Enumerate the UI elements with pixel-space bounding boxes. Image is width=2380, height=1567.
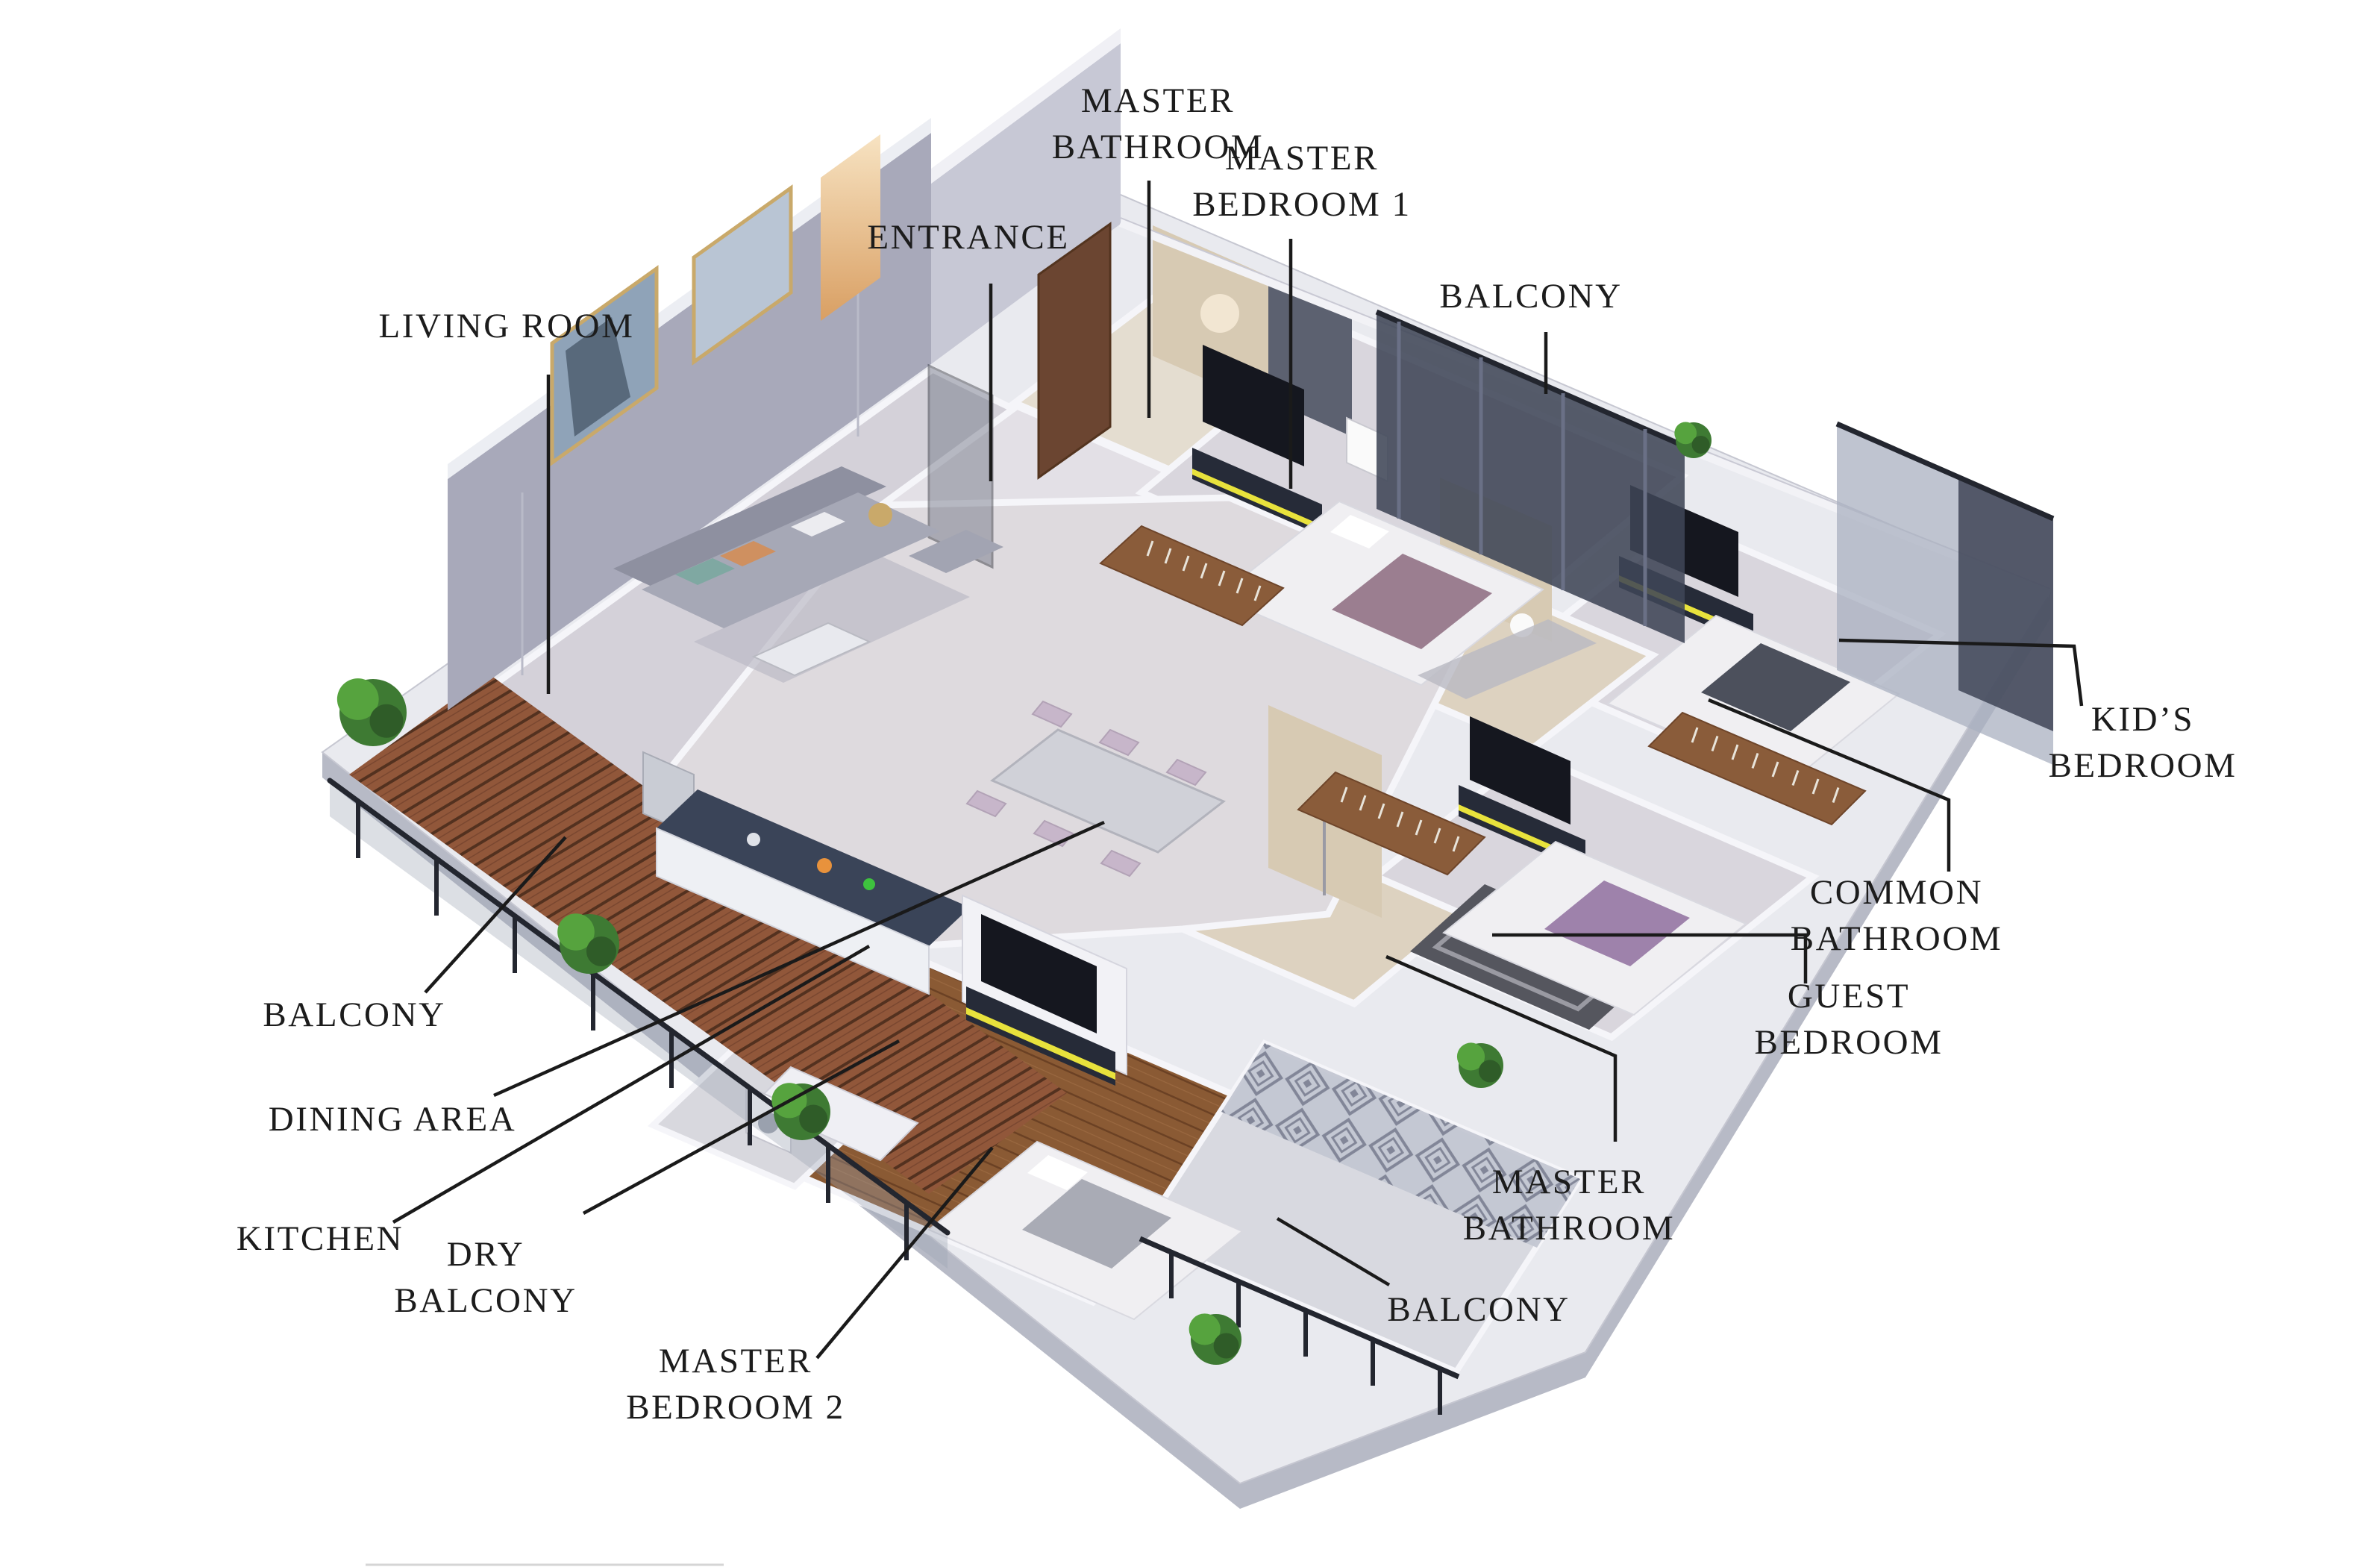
- side-table: [868, 503, 892, 527]
- kids-balcony-glass: [1958, 478, 2053, 731]
- label-guest-bedroom-line: GUEST: [1754, 973, 1943, 1019]
- label-kids-bedroom-line: KID’S: [2048, 696, 2237, 742]
- floor-plan-render: MASTERBATHROOMMASTERBEDROOM 1ENTRANCEBAL…: [0, 0, 2380, 1567]
- label-living-room: LIVING ROOM: [378, 303, 634, 349]
- label-balcony-left-line: BALCONY: [263, 992, 445, 1038]
- label-living-room-line: LIVING ROOM: [378, 303, 634, 349]
- label-guest-bedroom-line: BEDROOM: [1754, 1019, 1943, 1066]
- label-master-bathroom-2: MASTERBATHROOM: [1463, 1159, 1675, 1251]
- label-dining-area-line: DINING AREA: [269, 1096, 517, 1142]
- label-dry-balcony-line: BALCONY: [394, 1277, 577, 1324]
- label-balcony-bottom-line: BALCONY: [1387, 1286, 1570, 1333]
- label-balcony-top-line: BALCONY: [1439, 273, 1622, 319]
- kitchen-item: [863, 878, 875, 890]
- plant: [586, 936, 616, 966]
- label-kids-bedroom: KID’SBEDROOM: [2048, 696, 2237, 789]
- kitchen-plate: [747, 833, 760, 846]
- label-entrance-line: ENTRANCE: [867, 214, 1069, 260]
- bathroom-mirror: [1200, 294, 1239, 333]
- label-kitchen-line: KITCHEN: [237, 1216, 404, 1262]
- label-dry-balcony: DRYBALCONY: [394, 1231, 577, 1324]
- plant: [799, 1105, 827, 1133]
- label-master-bedroom-1: MASTERBEDROOM 1: [1192, 135, 1412, 228]
- plant: [1479, 1060, 1501, 1083]
- label-common-bathroom: COMMONBATHROOM: [1791, 869, 2002, 962]
- label-common-bathroom-line: COMMON: [1791, 869, 2002, 916]
- label-balcony-top: BALCONY: [1439, 273, 1622, 319]
- label-balcony-bottom: BALCONY: [1387, 1286, 1570, 1333]
- plant: [1692, 436, 1710, 454]
- label-dining-area: DINING AREA: [269, 1096, 517, 1142]
- label-guest-bedroom: GUESTBEDROOM: [1754, 973, 1943, 1066]
- label-kids-bedroom-line: BEDROOM: [2048, 742, 2237, 789]
- label-master-bathroom-top-line: MASTER: [1052, 78, 1264, 124]
- label-master-bedroom-1-line: BEDROOM 1: [1192, 181, 1412, 228]
- label-master-bedroom-2-line: BEDROOM 2: [626, 1384, 845, 1430]
- label-master-bathroom-2-line: BATHROOM: [1463, 1205, 1675, 1251]
- floor-plan-scene: [0, 0, 2380, 1567]
- label-dry-balcony-line: DRY: [394, 1231, 577, 1277]
- label-master-bathroom-2-line: MASTER: [1463, 1159, 1675, 1205]
- plant: [370, 704, 404, 738]
- plant: [1214, 1333, 1239, 1359]
- label-balcony-left: BALCONY: [263, 992, 445, 1038]
- label-common-bathroom-line: BATHROOM: [1791, 916, 2002, 962]
- label-entrance: ENTRANCE: [867, 214, 1069, 260]
- label-kitchen: KITCHEN: [237, 1216, 404, 1262]
- label-master-bedroom-2: MASTERBEDROOM 2: [626, 1338, 845, 1430]
- label-master-bedroom-1-line: MASTER: [1192, 135, 1412, 181]
- label-master-bedroom-2-line: MASTER: [626, 1338, 845, 1384]
- fruit-bowl: [817, 858, 832, 873]
